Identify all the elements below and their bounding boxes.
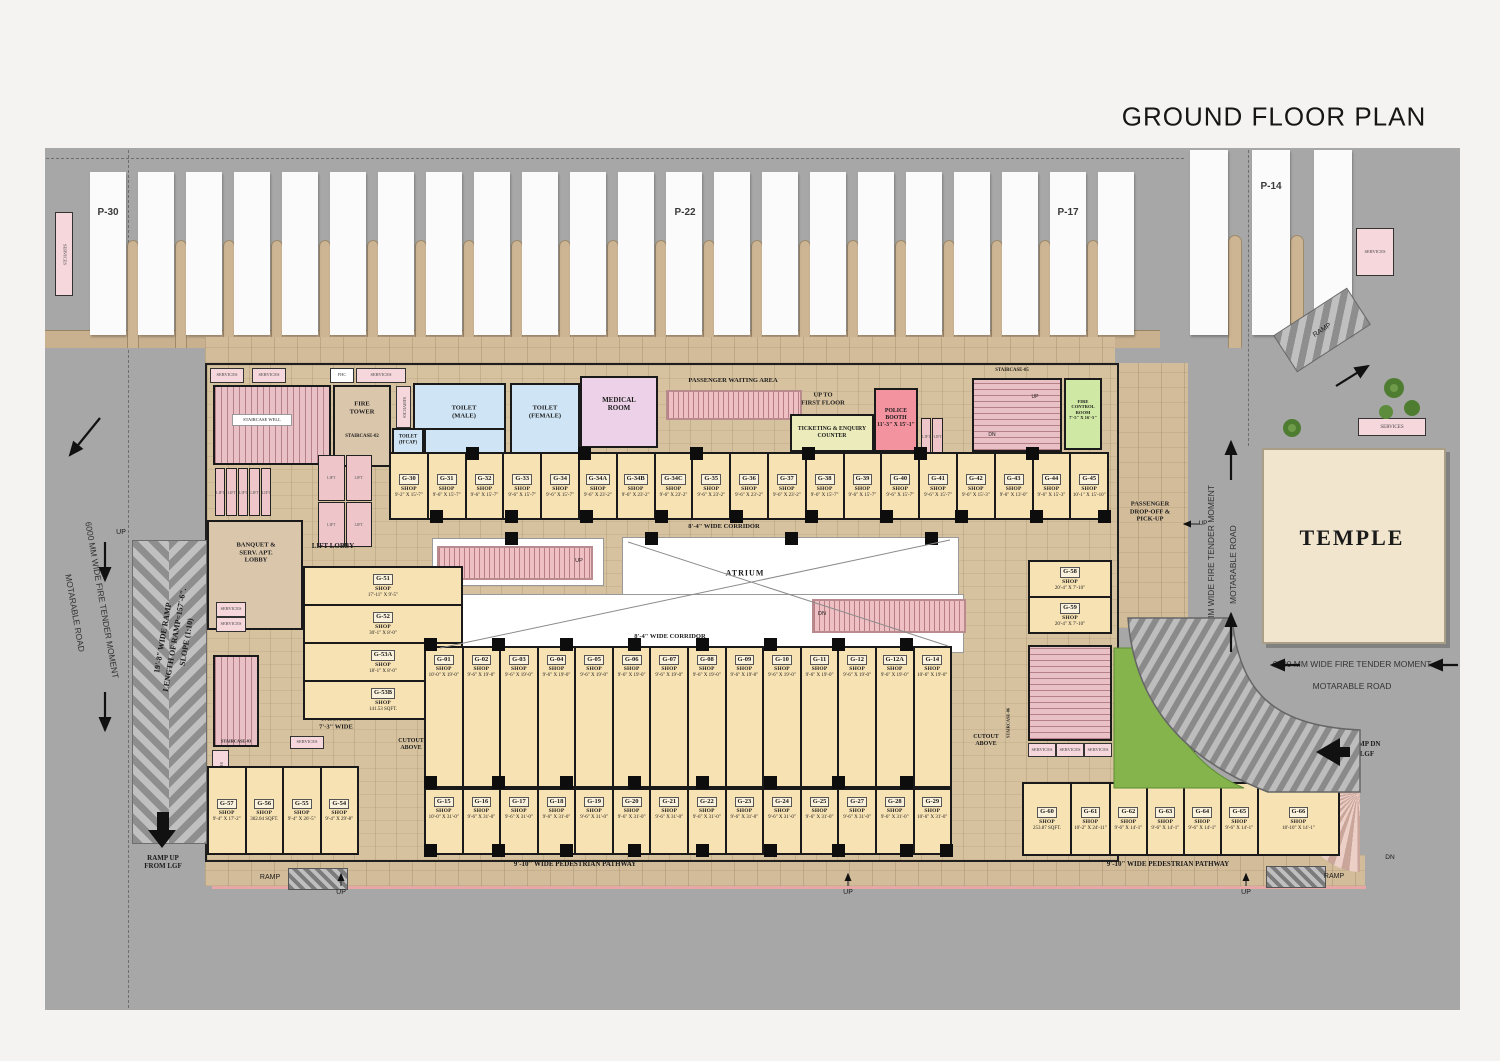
shop-dim: 9'-6" X 23'-2" xyxy=(697,493,725,498)
shop-cell: G-56 SHOP 302.04 SQFT. xyxy=(247,768,285,853)
lift-cell: LIFT xyxy=(318,502,345,548)
shop-cell: G-30 SHOP 9'-2" X 15'-7" xyxy=(391,454,429,518)
shop-type: SHOP xyxy=(256,810,272,816)
shop-cell: G-04 SHOP 9'-6" X 19'-0" xyxy=(539,648,577,786)
shop-type: SHOP xyxy=(439,486,455,492)
column xyxy=(805,510,818,523)
column xyxy=(832,638,845,651)
shop-type: SHOP xyxy=(741,486,757,492)
shop-cell: G-44 SHOP 9'-6" X 15'-3" xyxy=(1034,454,1072,518)
shop-dim: 18'-10" X 14'-1" xyxy=(1282,826,1315,831)
shop-dim: 9'-6" X 14'-1" xyxy=(1114,826,1142,831)
shop-cell: G-39 SHOP 9'-6" X 15'-7" xyxy=(845,454,883,518)
shop-cell: G-54 SHOP 9'-4" X 29'-8" xyxy=(322,768,358,853)
lift-bank: LIFTLIFT xyxy=(921,418,967,454)
shop-dim: 9'-6" X 15'-7" xyxy=(886,493,914,498)
shop-dim: 9'-6" X 13'-0" xyxy=(1000,493,1028,498)
shop-cell: G-02 SHOP 9'-6" X 19'-0" xyxy=(464,648,502,786)
shop-cell: G-07 SHOP 9'-6" X 19'-0" xyxy=(651,648,689,786)
corridor-label-bottom: 8'-4" WIDE CORRIDOR xyxy=(634,633,705,641)
shop-cell: G-55 SHOP 9'-4" X 26'-5" xyxy=(284,768,322,853)
parking-stall xyxy=(954,172,990,335)
shop-cell: G-45 SHOP 10'-1" X 15'-10" xyxy=(1071,454,1107,518)
shop-id: G-43 xyxy=(1004,474,1024,484)
shop-id: G-44 xyxy=(1042,474,1062,484)
shop-cell: G-63 SHOP 9'-6" X 14'-1" xyxy=(1148,784,1185,854)
shop-id: G-27 xyxy=(847,797,867,807)
shop-type: SHOP xyxy=(924,666,940,672)
shop-dim: 9'-6" X 19'-0" xyxy=(693,673,721,678)
medical-room-label: MEDICAL ROOM xyxy=(602,396,636,413)
shop-cell: G-36 SHOP 9'-6" X 23'-2" xyxy=(731,454,769,518)
shop-id: G-60 xyxy=(1037,807,1057,817)
shop-id: G-58 xyxy=(1060,567,1080,577)
shop-type: SHOP xyxy=(514,486,530,492)
column xyxy=(505,532,518,545)
shop-dim: 10'-6" X 31'-0" xyxy=(917,815,947,820)
column xyxy=(955,510,968,523)
shop-type: SHOP xyxy=(1120,819,1136,825)
shop-cell: G-01 SHOP 10'-0" X 19'-0" xyxy=(426,648,464,786)
column xyxy=(560,776,573,789)
shop-dim: 9'-6" X 31'-0" xyxy=(806,815,834,820)
shop-type: SHOP xyxy=(219,810,235,816)
shop-dim: 17'-11" X 9'-5" xyxy=(368,593,398,598)
lift-cell: LIFT xyxy=(226,468,236,516)
column xyxy=(655,510,668,523)
shop-type: SHOP xyxy=(294,810,310,816)
shop-id: G-30 xyxy=(399,474,419,484)
shop-type: SHOP xyxy=(661,808,677,814)
shop-id: G-34A xyxy=(586,474,610,484)
police-booth-label: POLICE BOOTH 11'-3" X 15'-1" xyxy=(877,408,915,428)
shop-id: G-63 xyxy=(1155,807,1175,817)
shop-dim: 253.87 SQFT. xyxy=(1033,826,1061,831)
shop-dim: 10'-2" X 24'-11" xyxy=(1074,826,1107,831)
shop-dim: 9'-6" X 19'-0" xyxy=(881,673,909,678)
staircase-03-label: STAIRCASE-03 xyxy=(221,738,251,743)
column xyxy=(1030,510,1043,523)
column xyxy=(696,638,709,651)
shop-cell: G-33 SHOP 9'-6" X 15'-7" xyxy=(504,454,542,518)
up-label: UP xyxy=(336,889,346,897)
shop-dim: 9'-6" X 19'-0" xyxy=(768,673,796,678)
shop-dim: 20'-4" X 7'-10" xyxy=(1055,586,1085,591)
parking-stall xyxy=(906,172,942,335)
shop-row-bottom-right: G-60 SHOP 253.87 SQFT. G-61 SHOP 10'-2" … xyxy=(1022,782,1340,856)
shop-id: G-55 xyxy=(292,799,312,809)
services-box: SERVICES xyxy=(216,617,246,632)
shop-cell: G-12A SHOP 9'-6" X 19'-0" xyxy=(877,648,915,786)
column xyxy=(900,638,913,651)
shop-type: SHOP xyxy=(737,808,753,814)
shop-cell: G-05 SHOP 9'-6" X 19'-0" xyxy=(576,648,614,786)
shop-type: SHOP xyxy=(892,486,908,492)
shop-id: G-35 xyxy=(701,474,721,484)
shop-type: SHOP xyxy=(849,666,865,672)
fire-tower-label: FIRE TOWER xyxy=(350,400,375,415)
shop-id: G-23 xyxy=(735,797,755,807)
column xyxy=(1026,447,1039,460)
escalator-dn xyxy=(812,599,966,633)
shop-dim: 9'-6" X 15'-7" xyxy=(471,493,499,498)
top-walkway xyxy=(205,337,1115,363)
shop-dim: 10'-1" X 15'-10" xyxy=(1073,493,1106,498)
shop-type: SHOP xyxy=(661,666,677,672)
parking-stall xyxy=(474,172,510,335)
lift-cell: LIFT xyxy=(215,468,225,516)
parking-stall xyxy=(666,172,702,335)
shop-type: SHOP xyxy=(1291,819,1307,825)
services-box: SERVICES xyxy=(396,386,411,428)
shop-dim: 9'-6" X 19'-0" xyxy=(618,673,646,678)
parking-stall xyxy=(858,172,894,335)
shop-dim: 9'-6" X 23'-2" xyxy=(773,493,801,498)
column xyxy=(764,844,777,857)
shop-cell: G-21 SHOP 9'-6" X 31'-0" xyxy=(651,790,689,853)
shop-id: G-06 xyxy=(622,655,642,665)
shop-type: SHOP xyxy=(1083,819,1099,825)
shop-cell: G-38 SHOP 9'-6" X 15'-7" xyxy=(807,454,845,518)
shop-cell: G-41 SHOP 9'-6" X 15'-7" xyxy=(920,454,958,518)
up-label: UP xyxy=(1032,395,1039,401)
up-to-first-floor-label: UP TO FIRST FLOOR xyxy=(801,391,845,406)
services-box: SERVICES xyxy=(1056,743,1084,757)
shop-type: SHOP xyxy=(624,666,640,672)
parking-stall xyxy=(1190,150,1228,335)
shop-id: G-20 xyxy=(622,797,642,807)
shop-dim: 9'-6" X 31'-0" xyxy=(881,815,909,820)
shop-type: SHOP xyxy=(375,700,391,706)
shop-id: G-03 xyxy=(509,655,529,665)
shop-dim: 9'-4" X 17'-2" xyxy=(213,817,241,822)
parking-stall xyxy=(762,172,798,335)
dn-label: DN xyxy=(988,433,995,439)
parking-stall xyxy=(714,172,750,335)
bottom-road-text2: MOTARABLE ROAD xyxy=(1313,681,1392,691)
lift-cell: LIFT xyxy=(238,468,248,516)
staircase-06-label: STAIRCASE-06 xyxy=(1005,708,1010,738)
toilet-male-lower xyxy=(424,428,506,455)
shop-type: SHOP xyxy=(624,808,640,814)
ramp-label: RAMP xyxy=(260,874,280,882)
parking-stall xyxy=(282,172,318,335)
shop-dim: 9'-6" X 23'-2" xyxy=(735,493,763,498)
shop-row-bottom-left: G-57 SHOP 9'-4" X 17'-2" G-56 SHOP 302.0… xyxy=(207,766,359,855)
shop-id: G-19 xyxy=(584,797,604,807)
shop-type: SHOP xyxy=(375,586,391,592)
shop-type: SHOP xyxy=(774,666,790,672)
column xyxy=(492,776,505,789)
shop-type: SHOP xyxy=(703,486,719,492)
shop-dim: 10'-0" X 31'-0" xyxy=(429,815,459,820)
column xyxy=(940,844,953,857)
shop-id: G-05 xyxy=(584,655,604,665)
shop-type: SHOP xyxy=(930,486,946,492)
shop-cell: G-34C SHOP 9'-6" X 23'-2" xyxy=(656,454,694,518)
shop-dim: 9'-6" X 19'-0" xyxy=(731,673,759,678)
shop-type: SHOP xyxy=(968,486,984,492)
ticketing-label: TICKETING & ENQUIRY COUNTER xyxy=(798,426,866,440)
shop-dim: 9'-6" X 19'-0" xyxy=(505,673,533,678)
shop-type: SHOP xyxy=(887,808,903,814)
shop-type: SHOP xyxy=(552,486,568,492)
lift-cell: LIFT xyxy=(261,468,271,516)
shop-id: G-28 xyxy=(885,797,905,807)
shop-id: G-16 xyxy=(472,797,492,807)
up-label: UP xyxy=(575,558,583,564)
shop-id: G-22 xyxy=(697,797,717,807)
shop-cell: G-65 SHOP 9'-6" X 14'-1" xyxy=(1222,784,1259,854)
shop-type: SHOP xyxy=(511,808,527,814)
cutout-label: CUTOUT ABOVE xyxy=(398,738,424,752)
shop-cell: G-06 SHOP 9'-6" X 19'-0" xyxy=(614,648,652,786)
shop-type: SHOP xyxy=(549,808,565,814)
shop-cell: G-57 SHOP 9'-4" X 17'-2" xyxy=(209,768,247,853)
column xyxy=(560,638,573,651)
shop-type: SHOP xyxy=(1006,486,1022,492)
dn-label: DN xyxy=(818,611,826,617)
up-label: UP xyxy=(1241,889,1251,897)
shop-dim: 9'-6" X 15'-7" xyxy=(811,493,839,498)
corridor-label-top: 8'-4" WIDE CORRIDOR xyxy=(688,523,759,531)
shop-dim: 9'-6" X 31'-0" xyxy=(618,815,646,820)
shop-id: G-53A xyxy=(371,650,395,660)
shop-dim: 10'-6" X 19'-0" xyxy=(917,673,947,678)
shop-type: SHOP xyxy=(331,810,347,816)
shop-id: G-37 xyxy=(777,474,797,484)
dropoff-pavers xyxy=(1115,363,1188,628)
shop-type: SHOP xyxy=(590,486,606,492)
shop-type: SHOP xyxy=(887,666,903,672)
parking-stall xyxy=(1098,172,1134,335)
ramp-up-from-lgf: RAMP UP FROM LGF xyxy=(144,854,182,871)
parking-island xyxy=(1228,235,1242,348)
shop-dim: 9'-6" X 19'-0" xyxy=(580,673,608,678)
shop-cell: G-61 SHOP 10'-2" X 24'-11" xyxy=(1072,784,1111,854)
shop-id: G-53B xyxy=(371,688,395,698)
lift-cell: LIFT xyxy=(346,455,373,501)
shop-cell: G-35 SHOP 9'-6" X 23'-2" xyxy=(693,454,731,518)
parking-stall xyxy=(330,172,366,335)
lift-cell: LIFT xyxy=(346,502,373,548)
dn-label: DN xyxy=(1385,854,1394,862)
shop-dim: 141.53 SQFT. xyxy=(369,707,397,712)
shop-type: SHOP xyxy=(436,808,452,814)
services-box: SERVICES xyxy=(252,368,286,383)
shop-type: SHOP xyxy=(473,808,489,814)
shop-id: G-52 xyxy=(373,612,393,622)
floor-plan-canvas: GROUND FLOOR PLAN P-30 P-22 P-17 P-14 SE… xyxy=(0,0,1500,1061)
services-box: SERVICES xyxy=(1356,228,1394,276)
right-road-text: 6000 MM WIDE FIRE TENDER MOMENT xyxy=(1206,470,1216,660)
shop-id: G-04 xyxy=(547,655,567,665)
shop-type: SHOP xyxy=(549,666,565,672)
temple-label: TEMPLE xyxy=(1300,525,1405,551)
lift-lobby-label: LIFT LOBBY xyxy=(312,542,354,550)
ramp-dn-to-lgf: RAMP DN TO LGF xyxy=(1348,740,1380,760)
staircase-well-label: STAIRCASE WELL xyxy=(232,414,292,426)
shop-cell: G-34A SHOP 9'-6" X 23'-2" xyxy=(580,454,618,518)
shop-dim: 9'-6" X 31'-0" xyxy=(693,815,721,820)
services-box: SERVICES xyxy=(55,212,73,296)
column xyxy=(696,776,709,789)
shop-dim: 9'-6" X 15'-3" xyxy=(962,493,990,498)
shop-dim: 9'-6" X 19'-0" xyxy=(843,673,871,678)
lift-cell: LIFT xyxy=(249,468,259,516)
right-ramp-text: 19'-8" WIDE RAMP LENGTH OF RAMP=157'-6".… xyxy=(1158,732,1323,767)
shop-cell: G-03 SHOP 9'-6" X 19'-0" xyxy=(501,648,539,786)
shop-cell: G-12 SHOP 9'-6" X 19'-0" xyxy=(839,648,877,786)
shop-dim: 9'-6" X 19'-0" xyxy=(655,673,683,678)
shop-id: G-07 xyxy=(659,655,679,665)
column xyxy=(560,844,573,857)
parking-stall xyxy=(1002,172,1038,335)
waiting-escalator xyxy=(666,390,802,420)
shop-dim: 9'-6" X 31'-0" xyxy=(467,815,495,820)
shop-cell: G-42 SHOP 9'-6" X 15'-3" xyxy=(958,454,996,518)
shop-dim: 9'-6" X 15'-7" xyxy=(433,493,461,498)
staircase-05-label: STAIRCASE-05 xyxy=(995,368,1029,374)
shop-dim: 9'-6" X 31'-0" xyxy=(655,815,683,820)
shop-type: SHOP xyxy=(375,662,391,668)
staircase-05-block xyxy=(972,378,1062,452)
parking-stall xyxy=(618,172,654,335)
shop-type: SHOP xyxy=(1039,819,1055,825)
shop-type: SHOP xyxy=(666,486,682,492)
staircase-02-label: STAIRCASE-02 xyxy=(345,434,379,440)
parking-stall xyxy=(570,172,606,335)
column xyxy=(730,510,743,523)
shop-cell: G-40 SHOP 9'-6" X 15'-7" xyxy=(882,454,920,518)
shop-dim: 9'-6" X 31'-0" xyxy=(580,815,608,820)
atrium-cutout xyxy=(622,537,959,595)
up-label: UP xyxy=(116,529,126,537)
shop-type: SHOP xyxy=(473,666,489,672)
shop-cell: G-64 SHOP 9'-6" X 14'-1" xyxy=(1185,784,1222,854)
shop-type: SHOP xyxy=(511,666,527,672)
shop-id: G-31 xyxy=(437,474,457,484)
shop-cell: G-58 SHOP 20'-4" X 7'-10" xyxy=(1030,562,1110,598)
shop-dim: 30'-1" X 8'-0" xyxy=(369,631,397,636)
shop-type: SHOP xyxy=(628,486,644,492)
shop-type: SHOP xyxy=(699,666,715,672)
column xyxy=(832,844,845,857)
parking-stall xyxy=(1050,172,1086,335)
shop-id: G-38 xyxy=(815,474,835,484)
ramp-label: RAMP xyxy=(1324,873,1344,881)
banquet-label: BANQUET & SERV. APT. LOBBY xyxy=(236,542,275,565)
shop-cell: G-34 SHOP 9'-6" X 15'-7" xyxy=(542,454,580,518)
parking-stall xyxy=(1252,150,1290,335)
shop-row-top: G-30 SHOP 9'-2" X 15'-7" G-31 SHOP 9'-6"… xyxy=(389,452,1109,520)
column xyxy=(580,510,593,523)
shop-cell: G-66 SHOP 18'-10" X 14'-1" xyxy=(1259,784,1338,854)
shop-dim: 18'-1" X 8'-0" xyxy=(369,669,397,674)
shop-dim: 10'-0" X 19'-0" xyxy=(429,673,459,678)
shop-cell: G-14 SHOP 10'-6" X 19'-0" xyxy=(915,648,951,786)
parking-label-p17: P-17 xyxy=(1057,207,1078,219)
shop-type: SHOP xyxy=(737,666,753,672)
shop-dim: 9'-6" X 15'-7" xyxy=(546,493,574,498)
parking-label-p14: P-14 xyxy=(1260,181,1281,193)
shop-type: SHOP xyxy=(1062,579,1078,585)
shop-dim: 9'-6" X 14'-1" xyxy=(1225,826,1253,831)
parking-stall xyxy=(810,172,846,335)
services-box: SERVICES xyxy=(216,602,246,617)
toilet-hcap-label: TOILET (H'CAP) xyxy=(399,434,417,445)
shop-dim: 9'-6" X 31'-0" xyxy=(543,815,571,820)
services-box: SERVICES xyxy=(356,368,406,383)
shop-type: SHOP xyxy=(436,666,452,672)
column xyxy=(802,447,815,460)
shop-type: SHOP xyxy=(586,808,602,814)
bottom-margin xyxy=(0,1010,1500,1061)
shop-dim: 9'-6" X 15'-3" xyxy=(1038,493,1066,498)
shop-cell: G-10 SHOP 9'-6" X 19'-0" xyxy=(764,648,802,786)
column xyxy=(764,776,777,789)
parking-stall xyxy=(186,172,222,335)
shop-dim: 9'-6" X 23'-2" xyxy=(660,493,688,498)
shop-id: G-02 xyxy=(472,655,492,665)
column xyxy=(578,447,591,460)
shop-dim: 9'-6" X 31'-0" xyxy=(505,815,533,820)
shop-type: SHOP xyxy=(1081,486,1097,492)
shop-id: G-66 xyxy=(1289,807,1309,817)
parking-stall xyxy=(138,172,174,335)
shop-id: G-15 xyxy=(434,797,454,807)
shop-id: G-34C xyxy=(661,474,685,484)
shop-cell: G-34B SHOP 9'-6" X 23'-2" xyxy=(618,454,656,518)
shop-id: G-24 xyxy=(772,797,792,807)
lift-bank: LIFTLIFTLIFTLIFT xyxy=(318,455,372,547)
shop-id: G-09 xyxy=(735,655,755,665)
column xyxy=(628,776,641,789)
shop-cell: G-32 SHOP 9'-6" X 15'-7" xyxy=(467,454,505,518)
shop-type: SHOP xyxy=(817,486,833,492)
atrium-label: ATRIUM xyxy=(726,568,765,577)
shop-dim: 9'-6" X 14'-1" xyxy=(1188,826,1216,831)
services-box: SERVICES xyxy=(1358,418,1426,436)
shop-type: SHOP xyxy=(779,486,795,492)
fire-control-label: FIRE CONTROL ROOM 7'-5" X 16'-5" xyxy=(1069,399,1097,421)
column xyxy=(785,532,798,545)
shop-id: G-36 xyxy=(739,474,759,484)
shop-type: SHOP xyxy=(774,808,790,814)
pathway-label: 9'-10" WIDE PEDESTRIAN PATHWAY xyxy=(514,860,636,868)
shop-dim: 302.04 SQFT. xyxy=(250,817,278,822)
column xyxy=(832,776,845,789)
shop-id: G-33 xyxy=(512,474,532,484)
shop-id: G-21 xyxy=(659,797,679,807)
lift-cell: LIFT xyxy=(932,418,942,454)
parking-label-p30: P-30 xyxy=(97,207,118,219)
waiting-area-label: PASSENGER WAITING AREA xyxy=(688,377,777,385)
column xyxy=(430,510,443,523)
shop-cell: G-60 SHOP 253.87 SQFT. xyxy=(1024,784,1072,854)
parking-label-p22: P-22 xyxy=(674,207,695,219)
shop-cell: G-59 SHOP 20'-4" X 7'-10" xyxy=(1030,598,1110,632)
shop-id: G-29 xyxy=(922,797,942,807)
shop-type: SHOP xyxy=(586,666,602,672)
shop-cell: G-37 SHOP 9'-6" X 23'-2" xyxy=(769,454,807,518)
shop-dim: 9'-6" X 31'-0" xyxy=(731,815,759,820)
shop-type: SHOP xyxy=(1157,819,1173,825)
shop-dim: 20'-4" X 7'-10" xyxy=(1055,622,1085,627)
column xyxy=(690,447,703,460)
shop-id: G-45 xyxy=(1079,474,1099,484)
shop-type: SHOP xyxy=(477,486,493,492)
